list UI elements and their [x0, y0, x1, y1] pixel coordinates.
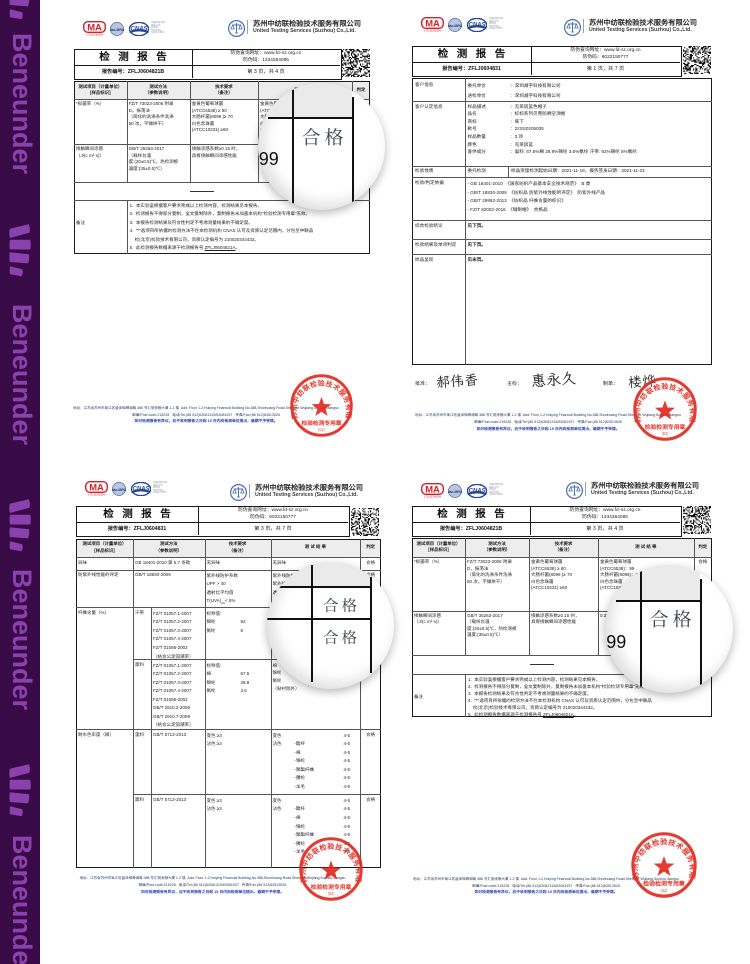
svg-text:苏州中纺联检验技术服务有限公司: 苏州中纺联检验技术服务有限公司 — [632, 376, 698, 424]
svg-text:(02): (02) — [318, 427, 325, 433]
svg-text:ilac-MRA: ilac-MRA — [448, 490, 462, 494]
svg-text:MA: MA — [425, 484, 440, 495]
svg-text:ilac-MRA: ilac-MRA — [110, 28, 124, 32]
svg-text:171011260099: 171011260099 — [86, 32, 104, 36]
svg-text:(02): (02) — [327, 891, 334, 897]
svg-text:检验检测专用章: 检验检测专用章 — [645, 422, 686, 431]
svg-text:ilac-MRA: ilac-MRA — [112, 488, 126, 492]
svg-text:检验检测专用章: 检验检测专用章 — [311, 882, 352, 891]
svg-text:苏州中纺联检验技术服务有限公司: 苏州中纺联检验技术服务有限公司 — [298, 836, 364, 884]
svg-text:检验检测专用章: 检验检测专用章 — [643, 879, 685, 888]
svg-text:171011260099: 171011260099 — [88, 492, 106, 496]
svg-text:苏州中纺联检验技术服务有限公司: 苏州中纺联检验技术服务有限公司 — [630, 831, 697, 880]
svg-text:苏州中纺联检验技术服务有限公司: 苏州中纺联检验技术服务有限公司 — [289, 373, 354, 420]
svg-text:CNAS: CNAS — [130, 27, 147, 33]
svg-text:MA: MA — [87, 22, 102, 33]
svg-text:CNAS: CNAS — [132, 487, 149, 493]
svg-text:CNAS: CNAS — [468, 489, 485, 495]
svg-text:MA: MA — [89, 482, 104, 493]
svg-text:检验检测专用章: 检验检测专用章 — [301, 418, 341, 427]
svg-text:171011260099: 171011260099 — [424, 494, 442, 498]
svg-text:CNAS: CNAS — [468, 23, 485, 29]
svg-text:MA: MA — [425, 18, 440, 29]
svg-text:(02): (02) — [661, 431, 668, 437]
svg-text:ilac-MRA: ilac-MRA — [448, 24, 462, 28]
svg-text:(02): (02) — [660, 888, 667, 894]
svg-text:171011260099: 171011260099 — [424, 28, 442, 32]
